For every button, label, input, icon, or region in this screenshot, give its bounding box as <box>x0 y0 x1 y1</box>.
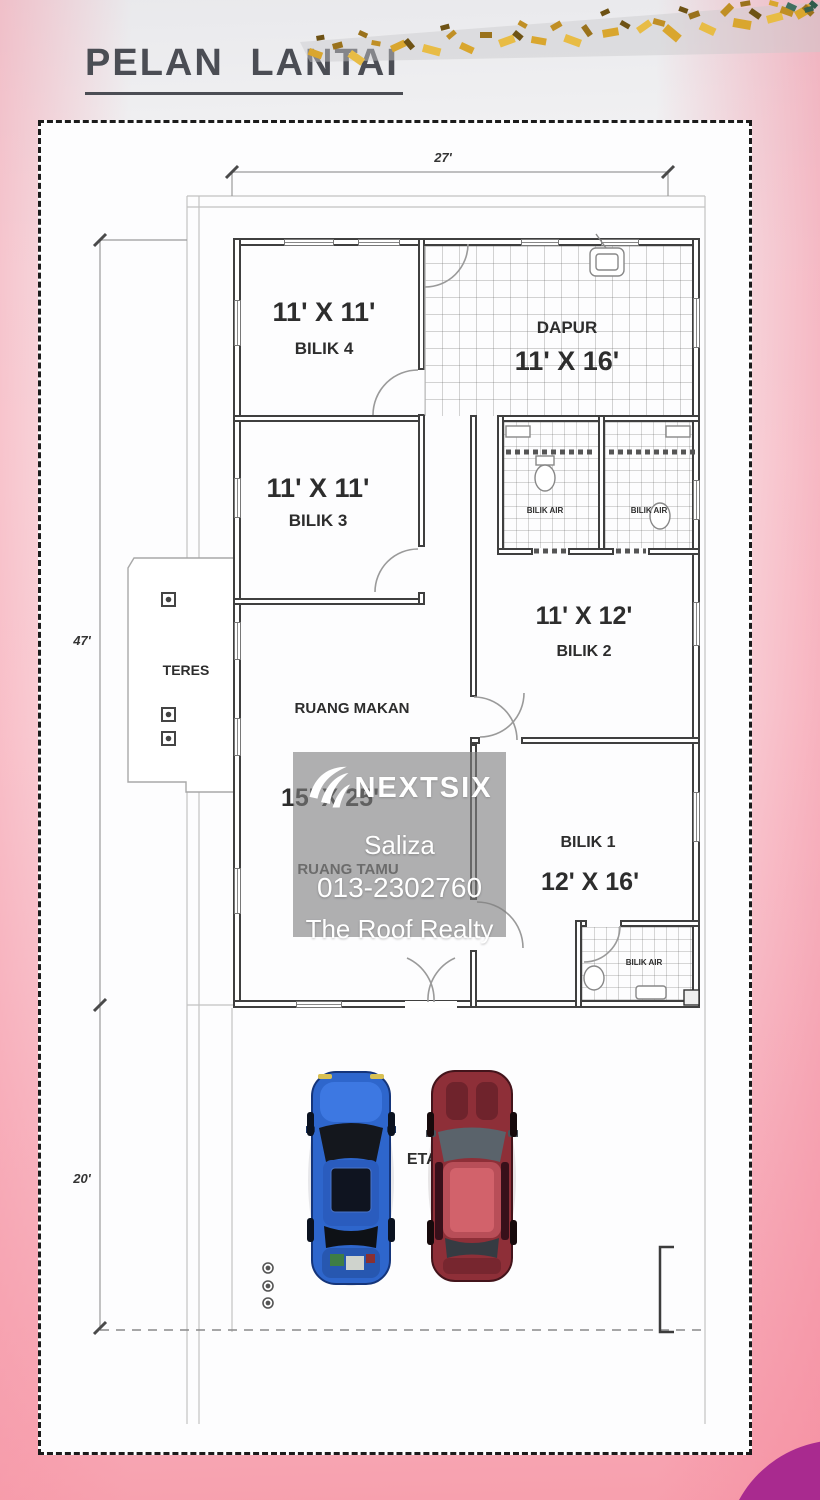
bilik4-name-label: BILIK 4 <box>295 339 354 359</box>
bilik-air-right-label: BILIK AIR <box>631 506 668 515</box>
ruang-makan-label: RUANG MAKAN <box>295 700 410 717</box>
parking-markers <box>263 1263 273 1308</box>
bilik-air-left-label: BILIK AIR <box>527 506 564 515</box>
bilik1-size-label: 12' X 16' <box>541 868 639 897</box>
nextsix-logo-icon <box>306 762 352 814</box>
bilik4-size-label: 11' X 11' <box>273 297 376 328</box>
gate-bracket <box>660 1247 674 1332</box>
dapur-size-label: 11' X 16' <box>515 346 619 377</box>
agent-phone: 013-2302760 <box>317 872 482 904</box>
agent-name: Saliza <box>364 830 435 861</box>
bilik-air-bottom-label: BILIK AIR <box>626 958 663 967</box>
teres-label: TERES <box>163 662 210 678</box>
agency-name: The Roof Realty <box>306 914 494 945</box>
brand-name: NEXTSIX <box>354 772 492 805</box>
red-car-image <box>426 1068 518 1286</box>
bilik3-name-label: BILIK 3 <box>289 511 348 531</box>
dim-27ft-label: 27' <box>434 150 452 165</box>
dim-47ft-label: 47' <box>73 633 91 648</box>
dim-20ft-label: 20' <box>73 1171 91 1186</box>
toilet <box>535 465 555 491</box>
shower-drain <box>684 990 699 1005</box>
blue-car-image <box>306 1068 396 1290</box>
bilik2-name-label: BILIK 2 <box>556 643 611 661</box>
flyer-canvas: 11' X 11' BILIK 4 DAPUR 11' X 16' 11' X … <box>0 0 820 1500</box>
agent-watermark: NEXTSIX Saliza 013-2302760 The Roof Real… <box>293 752 506 937</box>
dapur-name-label: DAPUR <box>537 318 597 338</box>
plan-linework <box>0 0 820 1500</box>
bilik3-size-label: 11' X 11' <box>267 473 370 504</box>
toilet <box>584 966 604 990</box>
brand-row: NEXTSIX <box>306 762 492 814</box>
bilik2-size-label: 11' X 12' <box>536 602 633 631</box>
confetti-icon <box>0 0 820 130</box>
sliding-door-marks <box>506 452 695 551</box>
bilik1-name-label: BILIK 1 <box>560 834 615 852</box>
